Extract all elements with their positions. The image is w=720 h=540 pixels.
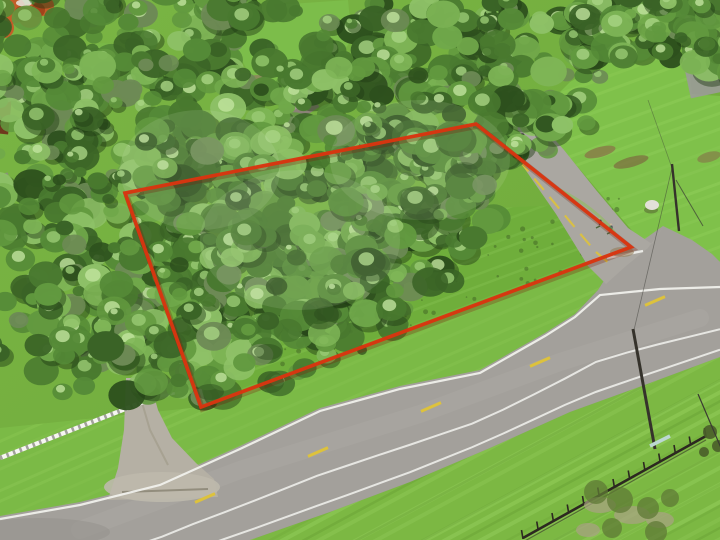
tree-blob (62, 235, 86, 255)
weed-speckle (496, 275, 499, 278)
weed-speckle (524, 267, 528, 271)
weed-speckle (614, 207, 619, 212)
tree-highlight-blob (159, 268, 165, 273)
fence-end-bush (699, 447, 709, 457)
tree-blob (118, 79, 142, 99)
tree-blob (87, 172, 108, 189)
weed-speckle (431, 311, 435, 315)
tree-highlight-blob (44, 175, 51, 181)
tree-blob (87, 331, 124, 361)
tree-blob (53, 174, 66, 185)
tree-blob (73, 286, 85, 296)
weed-speckle (494, 245, 497, 248)
weed-speckle (531, 236, 534, 239)
tree-blob (200, 294, 216, 307)
weed-speckle (410, 324, 412, 326)
weed-speckle (533, 240, 538, 245)
tree-blob (79, 51, 116, 81)
tree-blob (159, 55, 179, 72)
tree-highlight-blob (18, 9, 32, 21)
tree-blob (102, 194, 114, 204)
tree-blob (255, 55, 269, 66)
tree-blob (59, 194, 85, 215)
weed-speckle (523, 238, 526, 241)
tree-blob (183, 38, 211, 61)
tree-blob (138, 59, 153, 72)
weed-speckle (606, 197, 609, 200)
tree-blob (651, 22, 666, 34)
tree-highlight-blob (215, 373, 226, 383)
scrub-clump (602, 518, 622, 538)
weed-speckle (506, 235, 510, 239)
weed-speckle (423, 309, 428, 314)
tree-highlight-blob (276, 66, 283, 72)
tree-blob (412, 267, 448, 297)
canopy-edge-shadow (254, 344, 282, 360)
tree-highlight-blob (56, 330, 70, 342)
tree-blob (699, 37, 716, 51)
weed-speckle (421, 299, 423, 301)
tree-highlight-blob (453, 85, 466, 96)
tree-blob (241, 324, 255, 336)
tree-blob (233, 353, 256, 372)
tree-blob (674, 32, 687, 43)
tree-highlight-blob (290, 69, 303, 80)
tree-highlight-blob (382, 299, 396, 311)
tree-blob (93, 76, 114, 94)
tree-blob (170, 257, 189, 272)
tree-blob (56, 221, 74, 236)
tree-highlight-blob (394, 55, 404, 64)
tree-blob (100, 271, 134, 299)
tree-highlight-blob (161, 81, 174, 92)
tree-blob (427, 0, 461, 28)
tree-blob (254, 83, 269, 95)
tree-blob (118, 14, 139, 31)
tree-blob (386, 283, 404, 298)
weed-speckle (520, 226, 525, 231)
scrub-clump (584, 480, 608, 504)
tree-highlight-blob (284, 122, 290, 127)
tree-highlight-blob (344, 82, 353, 90)
scrub-clump (637, 497, 659, 519)
tree-blob (390, 271, 404, 282)
tree-blob (44, 7, 70, 28)
tree-highlight-blob (153, 244, 164, 254)
tree-highlight-blob (234, 8, 249, 20)
tree-highlight-blob (151, 353, 158, 359)
tree-blob (429, 65, 447, 80)
tree-highlight-blob (33, 145, 43, 153)
tree-highlight-blob (347, 19, 353, 24)
tree-blob (325, 57, 352, 79)
weed-speckle (618, 198, 620, 200)
weed-speckle (472, 297, 476, 301)
tree-highlight-blob (227, 296, 241, 308)
tree-blob (459, 226, 487, 249)
tree-blob (316, 30, 330, 42)
tree-highlight-blob (132, 1, 140, 8)
tree-highlight-blob (387, 12, 400, 23)
tree-highlight-blob (511, 141, 519, 148)
tree-blob (134, 368, 168, 396)
tree-highlight-blob (218, 98, 234, 112)
tree-blob (457, 37, 479, 55)
tree-highlight-blob (252, 111, 266, 123)
tree-blob (209, 42, 227, 57)
tree-blob (143, 91, 161, 106)
tree-blob (3, 34, 31, 57)
weed-speckle (296, 349, 301, 354)
tree-blob (74, 167, 86, 177)
tree-highlight-blob (475, 93, 490, 106)
aerial-photo (0, 0, 720, 540)
tree-highlight-blob (184, 303, 194, 312)
tree-highlight-blob (323, 16, 332, 24)
tree-highlight-blob (110, 308, 117, 314)
tree-highlight-blob (194, 288, 204, 296)
tree-highlight-blob (359, 40, 375, 54)
weed-speckle (280, 362, 285, 367)
weed-speckle (466, 296, 468, 298)
tree-highlight-blob (608, 15, 622, 27)
tree-blob (23, 219, 42, 234)
fence-end-bush (703, 425, 717, 439)
tree-highlight-blob (656, 44, 666, 52)
tree-blob (480, 30, 516, 59)
tree-blob (532, 11, 549, 25)
tree-blob (577, 115, 596, 130)
rock (645, 200, 659, 210)
tree-blob (172, 12, 192, 28)
tree-blob (34, 283, 62, 306)
scrub-clump (661, 489, 679, 507)
tree-blob (62, 64, 75, 74)
tree-highlight-blob (56, 385, 65, 393)
tree-highlight-blob (576, 49, 589, 60)
weed-speckle (551, 243, 554, 246)
weed-speckle (550, 220, 554, 224)
tree-blob (257, 312, 279, 330)
weed-speckle (284, 348, 286, 350)
tree-blob (512, 113, 529, 127)
tree-blob (9, 312, 29, 328)
weed-speckle (487, 254, 489, 256)
tree-blob (18, 198, 39, 216)
tree-highlight-blob (576, 8, 590, 20)
tree-highlight-blob (12, 251, 25, 262)
tree-highlight-blob (67, 151, 73, 156)
tree-highlight-blob (480, 16, 489, 23)
tree-highlight-blob (65, 266, 74, 274)
dirt-patch (576, 523, 600, 537)
tree-highlight-blob (201, 74, 213, 84)
tree-blob (552, 116, 574, 134)
tree-highlight-blob (111, 97, 117, 102)
tree-blob (120, 239, 140, 255)
tree-highlight-blob (204, 327, 220, 340)
tree-highlight-blob (132, 314, 146, 326)
weed-speckle (519, 277, 523, 281)
sun-bleach (330, 100, 510, 220)
tree-highlight-blob (149, 326, 159, 334)
tree-highlight-blob (75, 109, 83, 116)
tree-blob (498, 8, 525, 30)
tree-blob (108, 242, 122, 253)
weed-speckle (519, 248, 523, 252)
tree-blob (25, 334, 53, 357)
tree-blob (172, 288, 187, 301)
tree-highlight-blob (40, 59, 48, 66)
tree-blob (488, 65, 514, 86)
tree-highlight-blob (137, 100, 144, 106)
tree-highlight-blob (615, 49, 628, 60)
tree-blob (73, 377, 95, 395)
tree-highlight-blob (29, 108, 44, 120)
tree-blob (530, 56, 567, 86)
tree-highlight-blob (298, 98, 305, 104)
tree-blob (235, 68, 251, 81)
tree-highlight-blob (85, 269, 100, 282)
weed-speckle (536, 246, 538, 248)
aerial-photo-svg (0, 0, 720, 540)
tree-blob (173, 69, 197, 88)
scrub-clump (607, 487, 633, 513)
tree-blob (408, 67, 428, 83)
